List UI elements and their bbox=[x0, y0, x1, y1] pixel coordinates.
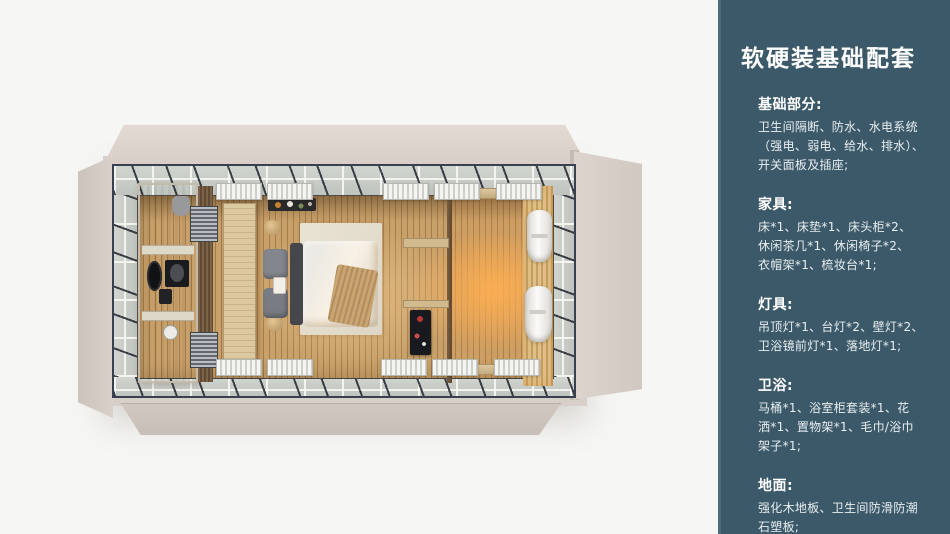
ceiling-vent-panel bbox=[494, 359, 540, 376]
shell-left-flap bbox=[78, 156, 113, 418]
section-body: 马桶*1、浴室柜套装*1、花 洒*1、置物架*1、毛巾/浴巾 架子*1; bbox=[758, 399, 936, 456]
ceiling-vent-panel bbox=[432, 359, 478, 376]
wall-shelf bbox=[403, 238, 449, 248]
ceiling-vent-panel bbox=[383, 183, 429, 200]
spec-sections: 基础部分: 卫生间隔断、防水、水电系统 （强电、弱电、给水、排水）、 开关面板及… bbox=[758, 94, 936, 534]
ceiling-vent-panel bbox=[216, 359, 262, 376]
towel-rack bbox=[190, 206, 218, 242]
shower-fixture bbox=[163, 325, 178, 340]
pillow bbox=[263, 249, 288, 279]
shell-right-flap bbox=[574, 146, 642, 402]
ceiling-vent-panel bbox=[496, 183, 542, 200]
panel-title: 软硬装基础配套 bbox=[741, 46, 936, 74]
section-heading: 灯具: bbox=[758, 294, 936, 314]
section-heading: 地面: bbox=[758, 475, 936, 495]
section-body: 卫生间隔断、防水、水电系统 （强电、弱电、给水、排水）、 开关面板及插座; bbox=[758, 118, 936, 175]
section-heading: 基础部分: bbox=[758, 94, 936, 114]
room-divider-wall bbox=[447, 191, 452, 383]
section-body: 强化木地板、卫生间防滑防潮 石塑板; bbox=[758, 499, 936, 534]
headboard-panel bbox=[223, 203, 256, 365]
section-basics: 基础部分: 卫生间隔断、防水、水电系统 （强电、弱电、给水、排水）、 开关面板及… bbox=[758, 94, 936, 175]
glass-walkway-right bbox=[552, 195, 574, 377]
shell-bottom-flap bbox=[116, 403, 566, 435]
wash-basin bbox=[170, 264, 184, 282]
room-interior bbox=[137, 195, 554, 379]
container-frame bbox=[112, 164, 576, 398]
bathroom-shelf bbox=[142, 245, 194, 255]
page: 软硬装基础配套 基础部分: 卫生间隔断、防水、水电系统 （强电、弱电、给水、排水… bbox=[0, 0, 950, 534]
curtain bbox=[525, 286, 552, 342]
storage-cart bbox=[410, 310, 431, 355]
towel-rack bbox=[190, 332, 218, 368]
section-body: 床*1、床垫*1、床头柜*2、 休闲茶几*1、休闲椅子*2、 衣帽架*1、梳妆台… bbox=[758, 218, 936, 275]
section-flooring: 地面: 强化木地板、卫生间防滑防潮 石塑板; bbox=[758, 475, 936, 534]
ceiling-vent-panel bbox=[381, 359, 427, 376]
bed bbox=[260, 241, 378, 327]
ceiling-vent-panel bbox=[434, 183, 480, 200]
ceiling-vent-panel bbox=[267, 183, 313, 200]
vanity-mirror bbox=[147, 261, 162, 291]
bed-tray bbox=[273, 277, 286, 294]
ceiling-vent-panel bbox=[267, 359, 313, 376]
section-body: 吊顶灯*1、台灯*2、壁灯*2、 卫浴镜前灯*1、落地灯*1; bbox=[758, 318, 936, 356]
pouf-stool bbox=[264, 220, 281, 235]
section-furniture: 家具: 床*1、床垫*1、床头柜*2、 休闲茶几*1、休闲椅子*2、 衣帽架*1… bbox=[758, 194, 936, 275]
ceiling-vent-panel bbox=[216, 183, 262, 200]
vanity-stool bbox=[159, 289, 172, 304]
section-bathroom: 卫浴: 马桶*1、浴室柜套装*1、花 洒*1、置物架*1、毛巾/浴巾 架子*1; bbox=[758, 375, 936, 456]
section-heading: 家具: bbox=[758, 194, 936, 214]
headboard-cushion bbox=[290, 243, 303, 325]
wall-shelf bbox=[403, 300, 449, 308]
floorplan-render bbox=[0, 0, 718, 534]
bathroom-block bbox=[138, 183, 198, 383]
curtain bbox=[527, 210, 552, 262]
toilet bbox=[172, 196, 190, 216]
curtain-tie bbox=[529, 310, 546, 314]
bathroom-shelf bbox=[142, 311, 194, 321]
bathroom-vanity bbox=[165, 260, 189, 287]
info-panel: 软硬装基础配套 基础部分: 卫生间隔断、防水、水电系统 （强电、弱电、给水、排水… bbox=[718, 0, 950, 534]
section-heading: 卫浴: bbox=[758, 375, 936, 395]
curtain-tie bbox=[531, 234, 548, 238]
shell-top-flap bbox=[102, 124, 588, 167]
section-lighting: 灯具: 吊顶灯*1、台灯*2、壁灯*2、 卫浴镜前灯*1、落地灯*1; bbox=[758, 294, 936, 356]
glass-walkway-left bbox=[114, 195, 137, 377]
